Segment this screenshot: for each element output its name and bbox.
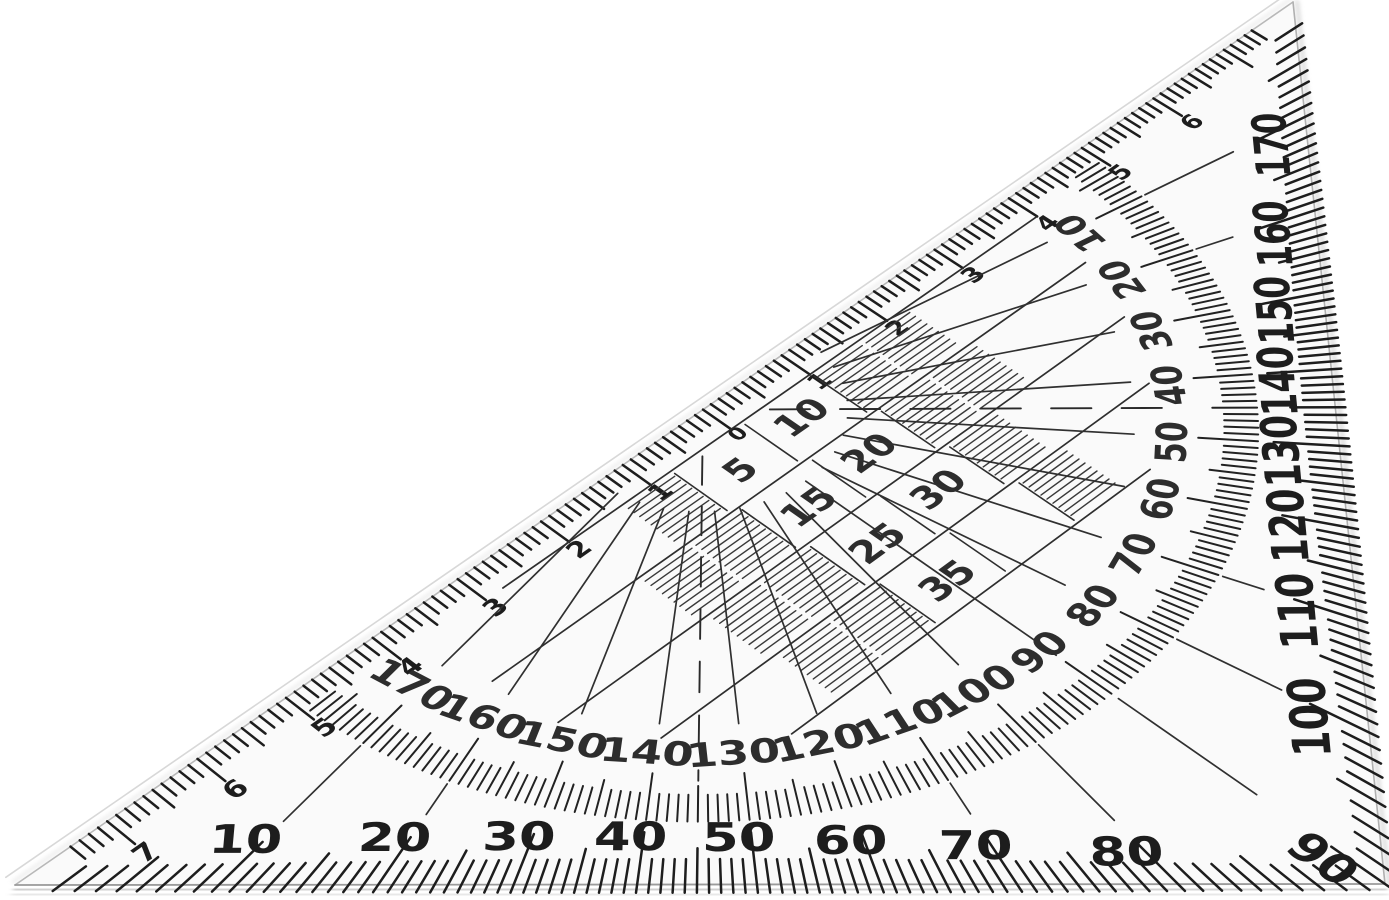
bottom-degree-label-40: 40 bbox=[593, 814, 668, 860]
bottom-degree-label-60: 60 bbox=[814, 818, 888, 864]
bottom-edge-shadow-soft bbox=[15, 894, 1385, 895]
right-degree-label-100: 100 bbox=[1276, 677, 1344, 757]
arc-tick bbox=[687, 795, 688, 822]
bottom-degree-label-50: 50 bbox=[702, 815, 776, 861]
edge-tick bbox=[1303, 400, 1344, 401]
edge-tick bbox=[1302, 384, 1343, 386]
edge-tick bbox=[1306, 429, 1348, 430]
right-degree-label-110: 110 bbox=[1264, 573, 1331, 650]
bottom-degree-label-30: 30 bbox=[481, 814, 556, 860]
edge-tick bbox=[720, 859, 721, 893]
right-degree-label-170: 170 bbox=[1242, 113, 1303, 178]
ring-degree-label-40: 40 bbox=[1140, 364, 1198, 408]
ring-degree-label-130: 130 bbox=[684, 731, 782, 776]
edge-tick bbox=[685, 859, 686, 893]
right-degree-label-140: 140 bbox=[1246, 346, 1310, 417]
edge-tick bbox=[1302, 392, 1343, 393]
ring-degree-label-50: 50 bbox=[1146, 420, 1198, 464]
photo-of-set-square: 0123456123456751015202530351020304050607… bbox=[0, 0, 1389, 900]
right-degree-label-160: 160 bbox=[1242, 200, 1305, 267]
edge-tick bbox=[1305, 422, 1347, 423]
bottom-degree-label-20: 20 bbox=[357, 814, 433, 860]
right-degree-label-150: 150 bbox=[1244, 276, 1307, 345]
set-square-protractor: 0123456123456751015202530351020304050607… bbox=[0, 0, 1389, 900]
right-degree-label-120: 120 bbox=[1256, 488, 1322, 562]
ring-degree-label-140: 140 bbox=[597, 730, 696, 774]
bottom-degree-label-70: 70 bbox=[938, 823, 1014, 870]
bottom-degree-label-80: 80 bbox=[1088, 829, 1165, 876]
right-degree-label-130: 130 bbox=[1250, 415, 1315, 487]
edge-tick bbox=[709, 859, 710, 893]
bottom-degree-label-10: 10 bbox=[207, 816, 284, 862]
edge-tick bbox=[697, 848, 698, 893]
